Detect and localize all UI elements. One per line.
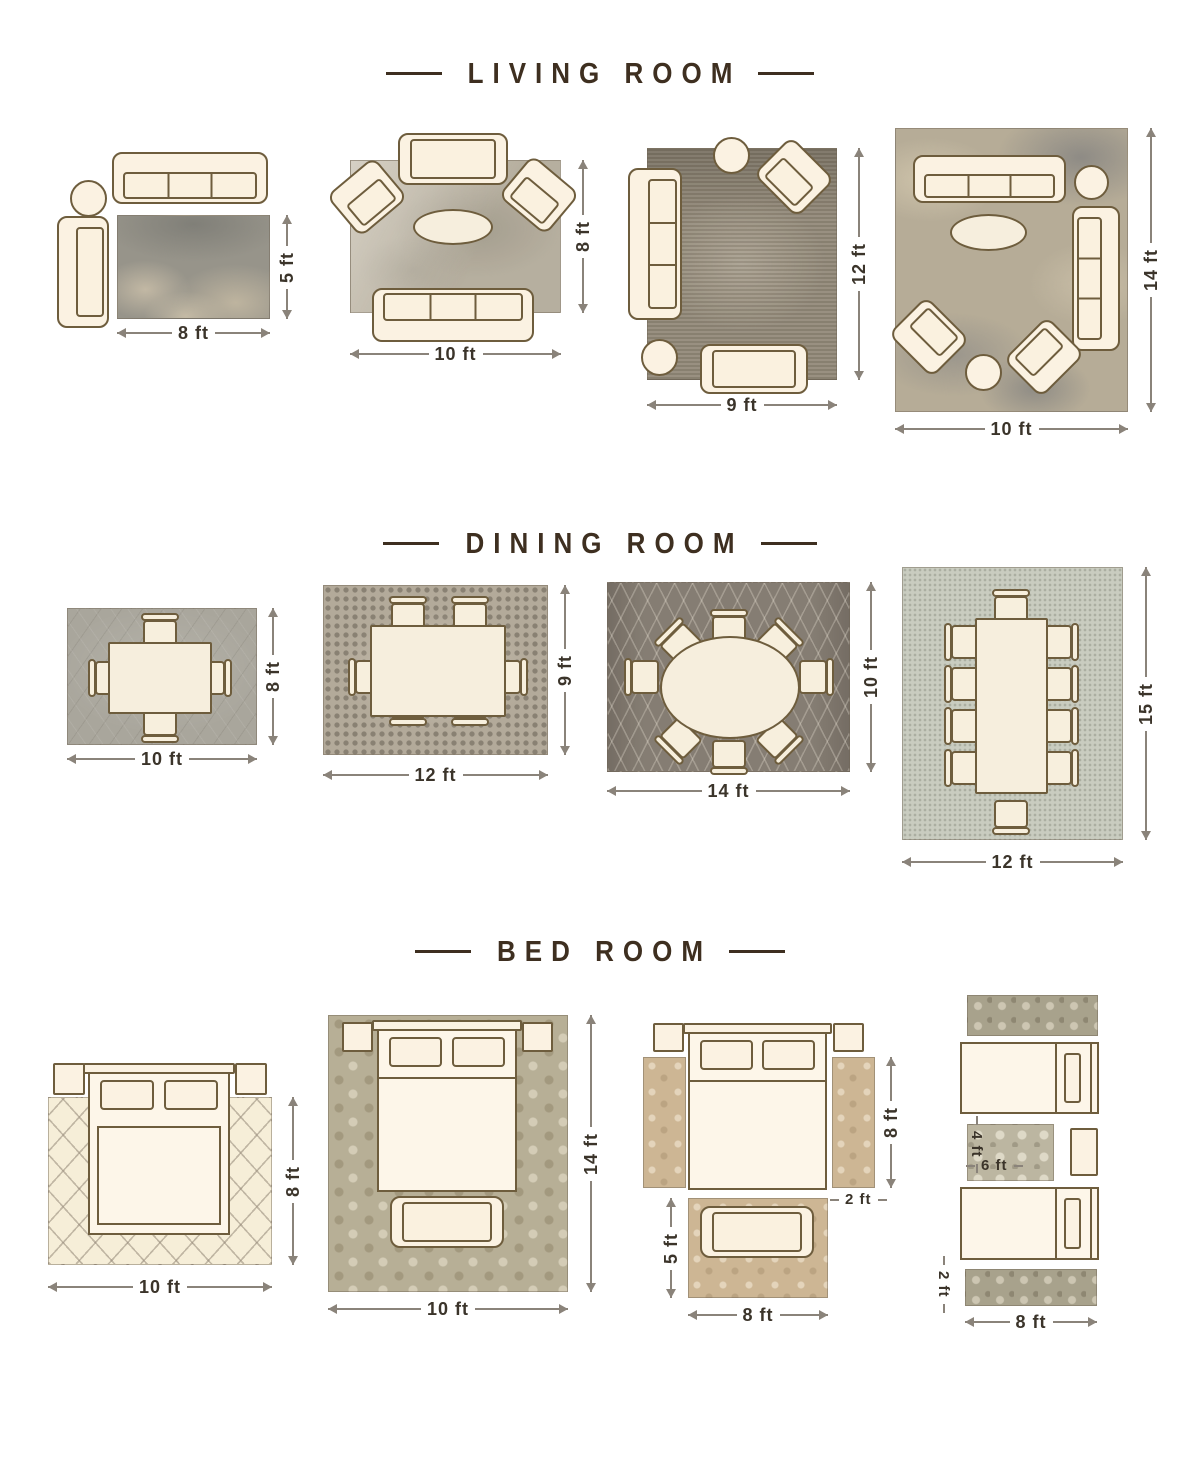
dimension-line bbox=[670, 1270, 672, 1299]
dimension-line bbox=[1150, 128, 1152, 243]
dimension-line bbox=[292, 1097, 294, 1160]
dimension-line bbox=[890, 1144, 892, 1188]
dimension-label: 8 ft bbox=[284, 1166, 302, 1197]
dimension-line bbox=[764, 404, 838, 406]
loveseat bbox=[57, 216, 109, 328]
twin-bed bbox=[960, 1187, 1099, 1260]
bench bbox=[390, 1196, 504, 1248]
width-dimension: 12 ft bbox=[323, 766, 548, 784]
nightstand bbox=[1070, 1128, 1098, 1176]
height-dimension: 8 ft bbox=[264, 608, 282, 745]
dimension-line bbox=[48, 1286, 133, 1288]
dimension-line bbox=[187, 1286, 272, 1288]
width-dimension: 10 ft bbox=[328, 1300, 568, 1318]
dimension-label: 14 ft bbox=[1142, 249, 1160, 291]
runner-length-dimension: 8 ft bbox=[882, 1057, 900, 1188]
dimension-line bbox=[976, 1116, 978, 1125]
dimension-line bbox=[943, 1304, 945, 1313]
nightstand bbox=[53, 1063, 85, 1095]
dimension-line bbox=[483, 353, 562, 355]
dimension-line bbox=[189, 758, 257, 760]
dimension-label: 15 ft bbox=[1137, 683, 1155, 725]
sofa bbox=[372, 288, 534, 342]
round-side-table bbox=[713, 137, 750, 174]
rug-size-guide: LIVING ROOM 5 ft 8 ft 8 ft 10 ft 12 ft bbox=[0, 0, 1200, 1467]
dining-chair bbox=[1044, 751, 1072, 785]
dimension-line bbox=[1145, 731, 1147, 841]
height-dimension: 10 ft bbox=[862, 582, 880, 772]
dimension-line bbox=[890, 1057, 892, 1101]
dimension-line bbox=[878, 1199, 887, 1201]
dimension-line bbox=[590, 1181, 592, 1293]
dimension-line bbox=[564, 692, 566, 756]
dimension-line bbox=[286, 215, 288, 246]
sofa bbox=[628, 168, 682, 320]
dimension-label: 10 ft bbox=[435, 345, 477, 363]
runner-rug-bottom bbox=[965, 1269, 1097, 1306]
dimension-line bbox=[323, 774, 409, 776]
loveseat bbox=[700, 344, 808, 394]
dimension-label: 5 ft bbox=[278, 252, 296, 283]
dimension-line bbox=[895, 428, 985, 430]
dimension-label: 2 ft bbox=[845, 1192, 872, 1207]
dimension-line bbox=[1040, 861, 1124, 863]
dimension-line bbox=[590, 1015, 592, 1127]
title-dash-right bbox=[761, 542, 817, 545]
dimension-line bbox=[286, 289, 288, 320]
dimension-label: 4 ft bbox=[969, 1131, 984, 1158]
height-dimension: 8 ft bbox=[284, 1097, 302, 1265]
section-title-living-room: LIVING ROOM bbox=[0, 58, 1200, 89]
dimension-line bbox=[870, 582, 872, 650]
small-rug-width-dimension: 6 ft bbox=[966, 1158, 1046, 1173]
bed-head-section bbox=[1055, 1044, 1097, 1112]
dimension-line bbox=[328, 1308, 421, 1310]
dimension-label: 9 ft bbox=[727, 396, 758, 414]
blanket-line bbox=[379, 1077, 515, 1079]
dimension-line bbox=[1053, 1321, 1098, 1323]
front-rug-height-dimension: 5 ft bbox=[662, 1198, 680, 1298]
dimension-line bbox=[463, 774, 549, 776]
round-side-table bbox=[1074, 165, 1109, 200]
dimension-label: 14 ft bbox=[708, 782, 750, 800]
dimension-label: 10 ft bbox=[141, 750, 183, 768]
bed bbox=[688, 1023, 827, 1190]
rug-living-8x5 bbox=[117, 215, 270, 319]
dimension-line bbox=[272, 698, 274, 745]
dimension-line bbox=[1150, 297, 1152, 412]
height-dimension: 14 ft bbox=[1142, 128, 1160, 412]
oval-dining-table bbox=[660, 636, 800, 739]
oval-coffee-table bbox=[413, 209, 493, 245]
width-dimension: 8 ft bbox=[117, 324, 270, 342]
dining-chair bbox=[631, 660, 659, 694]
runner-height-dimension: 2 ft bbox=[936, 1256, 951, 1312]
section-title-text: BED ROOM bbox=[497, 934, 712, 969]
dining-chair bbox=[712, 740, 746, 768]
nightstand bbox=[522, 1022, 553, 1052]
runner-rug-right bbox=[832, 1057, 875, 1188]
runner-rug-left bbox=[643, 1057, 686, 1188]
dimension-line bbox=[564, 585, 566, 649]
dimension-line bbox=[475, 1308, 568, 1310]
dimension-line bbox=[582, 160, 584, 215]
dimension-label: 12 ft bbox=[850, 243, 868, 285]
dining-chair bbox=[1044, 709, 1072, 743]
nightstand bbox=[342, 1022, 373, 1052]
round-side-table bbox=[965, 354, 1002, 391]
round-side-table bbox=[641, 339, 678, 376]
pillows bbox=[700, 1040, 815, 1070]
dimension-line bbox=[780, 1314, 829, 1316]
dimension-label: 8 ft bbox=[178, 324, 209, 342]
section-title-text: LIVING ROOM bbox=[468, 56, 742, 91]
bed bbox=[88, 1063, 230, 1235]
dimension-line bbox=[943, 1256, 945, 1265]
dimension-line bbox=[292, 1203, 294, 1266]
width-dimension: 9 ft bbox=[647, 396, 837, 414]
title-dash-right bbox=[758, 72, 814, 75]
sofa bbox=[112, 152, 268, 204]
dimension-label: 12 ft bbox=[992, 853, 1034, 871]
runner-rug-top bbox=[967, 995, 1098, 1036]
dimension-label: 2 ft bbox=[936, 1271, 951, 1298]
dimension-line bbox=[272, 608, 274, 655]
title-dash-left bbox=[415, 950, 471, 953]
dimension-line bbox=[756, 790, 851, 792]
dimension-label: 6 ft bbox=[981, 1158, 1008, 1173]
section-title-text: DINING ROOM bbox=[465, 526, 743, 561]
dimension-line bbox=[870, 704, 872, 772]
dimension-label: 5 ft bbox=[662, 1233, 680, 1264]
bed bbox=[377, 1020, 517, 1192]
dimension-line bbox=[582, 258, 584, 313]
title-dash-left bbox=[386, 72, 442, 75]
dining-chair bbox=[1044, 667, 1072, 701]
dimension-label: 14 ft bbox=[582, 1133, 600, 1175]
dining-table bbox=[370, 625, 506, 717]
bed-head-section bbox=[1055, 1189, 1097, 1258]
dimension-line bbox=[215, 332, 270, 334]
dimension-line bbox=[830, 1199, 839, 1201]
sofa bbox=[913, 155, 1066, 203]
dimension-line bbox=[688, 1314, 737, 1316]
height-dimension: 5 ft bbox=[278, 215, 296, 319]
sofa bbox=[1072, 206, 1120, 351]
dimension-line bbox=[902, 861, 986, 863]
bench bbox=[700, 1206, 814, 1258]
dimension-line bbox=[858, 148, 860, 237]
nightstand bbox=[235, 1063, 267, 1095]
dimension-line bbox=[67, 758, 135, 760]
height-dimension: 9 ft bbox=[556, 585, 574, 755]
dimension-label: 10 ft bbox=[139, 1278, 181, 1296]
dimension-line bbox=[965, 1321, 1010, 1323]
height-dimension: 14 ft bbox=[582, 1015, 600, 1292]
width-dimension: 10 ft bbox=[350, 345, 561, 363]
nightstand bbox=[833, 1023, 864, 1052]
dining-table bbox=[975, 618, 1048, 794]
dimension-line bbox=[1039, 428, 1129, 430]
blanket-line bbox=[690, 1080, 825, 1082]
dimension-label: 8 ft bbox=[1016, 1313, 1047, 1331]
dining-table bbox=[108, 642, 212, 714]
dimension-label: 9 ft bbox=[556, 655, 574, 686]
dimension-line bbox=[647, 404, 721, 406]
front-rug-width-dimension: 8 ft bbox=[688, 1306, 828, 1324]
dimension-label: 10 ft bbox=[427, 1300, 469, 1318]
pillows bbox=[100, 1080, 218, 1110]
dimension-line bbox=[670, 1198, 672, 1227]
title-dash-left bbox=[383, 542, 439, 545]
width-dimension: 14 ft bbox=[607, 782, 850, 800]
dimension-label: 8 ft bbox=[743, 1306, 774, 1324]
twin-bed bbox=[960, 1042, 1099, 1114]
dimension-line bbox=[1014, 1165, 1023, 1167]
dimension-line bbox=[117, 332, 172, 334]
runner-length-dimension: 8 ft bbox=[965, 1313, 1097, 1331]
dining-chair bbox=[1044, 625, 1072, 659]
dimension-line bbox=[966, 1165, 975, 1167]
dimension-label: 12 ft bbox=[415, 766, 457, 784]
oval-coffee-table bbox=[950, 214, 1027, 251]
bed-body bbox=[377, 1029, 517, 1192]
settee bbox=[398, 133, 508, 185]
width-dimension: 10 ft bbox=[48, 1278, 272, 1296]
bed-body bbox=[688, 1032, 827, 1190]
quilt bbox=[97, 1126, 221, 1225]
title-dash-right bbox=[729, 950, 785, 953]
pillows bbox=[389, 1037, 505, 1067]
runner-width-dimension: 2 ft bbox=[830, 1192, 888, 1207]
height-dimension: 15 ft bbox=[1137, 567, 1155, 840]
dimension-line bbox=[1145, 567, 1147, 677]
width-dimension: 12 ft bbox=[902, 853, 1123, 871]
round-side-table bbox=[70, 180, 107, 217]
dimension-label: 8 ft bbox=[574, 221, 592, 252]
height-dimension: 12 ft bbox=[850, 148, 868, 380]
width-dimension: 10 ft bbox=[67, 750, 257, 768]
dimension-label: 8 ft bbox=[264, 661, 282, 692]
dining-chair bbox=[994, 800, 1028, 828]
dimension-line bbox=[607, 790, 702, 792]
dimension-line bbox=[858, 291, 860, 380]
width-dimension: 10 ft bbox=[895, 420, 1128, 438]
section-title-dining-room: DINING ROOM bbox=[0, 528, 1200, 559]
dining-chair bbox=[799, 660, 827, 694]
dimension-line bbox=[350, 353, 429, 355]
dimension-label: 10 ft bbox=[862, 656, 880, 698]
dimension-label: 10 ft bbox=[991, 420, 1033, 438]
height-dimension: 8 ft bbox=[574, 160, 592, 313]
section-title-bed-room: BED ROOM bbox=[0, 936, 1200, 967]
dimension-label: 8 ft bbox=[882, 1107, 900, 1138]
bed-body bbox=[88, 1072, 230, 1235]
nightstand bbox=[653, 1023, 684, 1052]
